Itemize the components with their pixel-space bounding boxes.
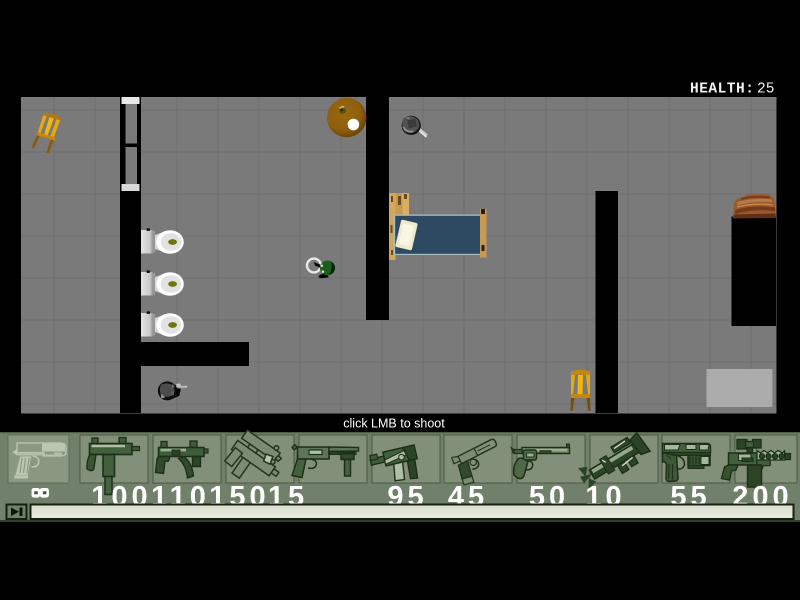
svg-text:HEALTH:: HEALTH: xyxy=(690,82,754,98)
svg-text:25: 25 xyxy=(757,82,774,98)
svg-text:click LMB to shoot: click LMB to shoot xyxy=(343,417,445,431)
